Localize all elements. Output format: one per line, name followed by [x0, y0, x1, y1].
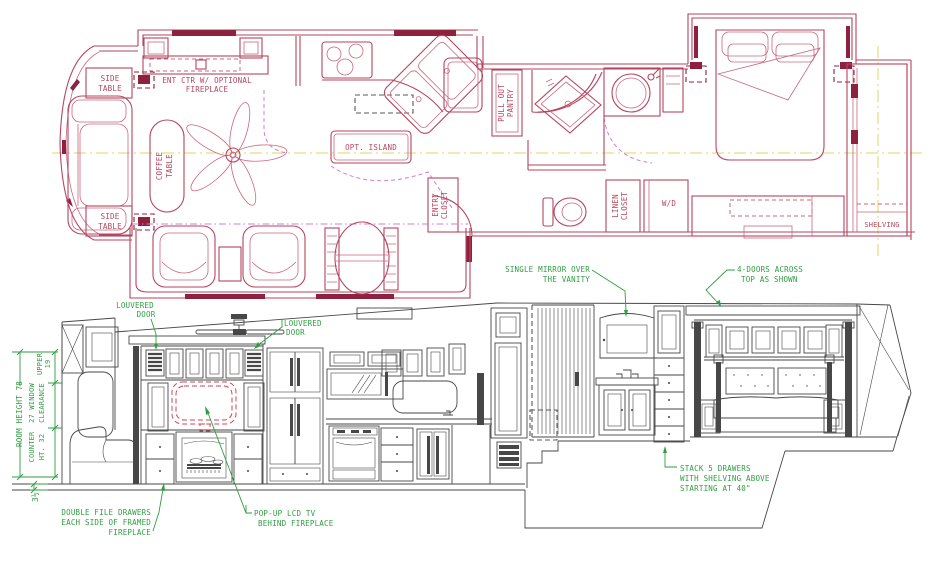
double-file-label-3: FIREPLACE [109, 528, 152, 537]
louvered-right-label-2: DOOR [286, 328, 305, 337]
vent-elevation [497, 442, 521, 468]
rear-cap-elevation [857, 304, 911, 451]
cad-drawing-page: SIDE TABLE SIDE TABLE [0, 0, 933, 569]
vanity-plan [604, 68, 660, 116]
bottom-wall-plan [455, 232, 915, 236]
pantry-label-2: PANTRY [506, 89, 515, 118]
callout-double-file-drawers: DOUBLE FILE DRAWERS EACH SIDE OF FRAMED … [61, 483, 165, 537]
wall-end-elevation [477, 373, 484, 425]
louvered-door-left-elevation [146, 350, 164, 376]
mirror-elevation [600, 314, 654, 359]
callout-four-doors: 4-DOORS ACROSS TOP AS SHOWN [706, 265, 803, 307]
stack-drawers-label-2: WITH SHELVING ABOVE [680, 474, 770, 483]
single-mirror-label-2: THE VANITY [543, 275, 590, 284]
coffee-table-label-1: COFFEE [155, 152, 164, 181]
vanity-elevation [596, 314, 658, 436]
ent-ctr-upper-doors [166, 349, 243, 378]
pocket-door-elevation [532, 305, 594, 437]
opt-island-label: OPT. ISLAND [345, 143, 397, 152]
armchair-2-plan [243, 226, 305, 287]
elevation-view [12, 303, 911, 528]
front-cap-plan [60, 46, 99, 240]
side-table-top-label-1: SIDE [101, 74, 120, 83]
bedroom-elevation [686, 306, 860, 437]
counter-edge-plan [322, 80, 443, 112]
toilet-plan [543, 198, 586, 226]
vanity-counter-elevation [596, 378, 658, 385]
popup-tv-label-2: BEHIND FIREPLACE [258, 519, 334, 528]
room-height-label: ROOM HEIGHT 78 [15, 381, 24, 447]
partition-swing-plan [264, 90, 288, 153]
linen-closet-label-2: CLOSET [620, 192, 629, 221]
bath-wall-plan [477, 36, 688, 69]
range-elevation [329, 426, 379, 481]
drawer-stack-elevation [381, 428, 413, 481]
five-drawer-stack-elevation [654, 306, 684, 442]
bath-cabinet-plan [663, 68, 683, 112]
side-table-bottom-label-2: TABLE [98, 222, 122, 231]
coffee-table-label-2: TABLE [165, 154, 174, 178]
washer-dryer-plan: W/D [644, 180, 688, 232]
double-file-label-1: DOUBLE FILE DRAWERS [61, 508, 151, 517]
linen-closet-plan: LINEN CLOSET [606, 180, 640, 232]
dimension-inner: UPPER 19 27 WINDOW CLEARANCE COUNTER HT.… [28, 349, 62, 480]
kitchen-sink-plan [381, 32, 486, 137]
hall-walls-plan [528, 116, 606, 170]
hidden-step-dashed [530, 410, 557, 440]
louvered-left-label-2: DOOR [137, 310, 156, 319]
top-slide-plan [138, 30, 478, 58]
stove-plan [322, 42, 372, 78]
counter-ht-label-1: COUNTER [28, 431, 36, 462]
dinette-plan [325, 222, 398, 294]
pantry-plan: PULL OUT PANTRY [492, 70, 522, 136]
green-annotations: LOUVERED DOOR LOUVERED DOOR SINGLE MIRRO… [12, 265, 803, 537]
shower-plan [532, 70, 602, 133]
linen-closet-label-1: LINEN [611, 194, 620, 218]
fireplace-elevation [176, 432, 232, 482]
shelving-label: SHELVING [864, 221, 899, 229]
louvered-door-right-elevation [245, 350, 263, 376]
ent-ctr-label-1: ENT CTR W/ OPTIONAL [162, 76, 252, 85]
chair-side-table-plan [219, 247, 241, 281]
four-doors-elevation [726, 327, 826, 353]
mattress-elevation [714, 397, 838, 418]
bottom-slide-plan [130, 224, 470, 299]
washer-dryer-label: W/D [662, 199, 676, 208]
wardrobe-plan: SHELVING [847, 60, 911, 240]
sofa-elevation [70, 427, 136, 484]
microwave-elevation [327, 369, 403, 399]
entry-steps-elevation [527, 441, 558, 488]
bath-cabinet-shelves [666, 76, 680, 84]
callout-single-mirror: SINGLE MIRROR OVER THE VANITY [505, 265, 628, 317]
four-doors-label-1: 4-DOORS ACROSS [737, 265, 803, 274]
four-doors-label-2: TOP AS SHOWN [741, 275, 798, 284]
stack-drawers-label-1: STACK 5 DRAWERS [680, 464, 751, 473]
ent-ctr-plan: ENT CTR W/ OPTIONAL FIREPLACE [143, 56, 268, 94]
refrigerator-elevation [267, 348, 323, 484]
floor-thickness-label: 3½ [30, 492, 40, 502]
bed-plan [716, 30, 824, 160]
window-clearance-label-2: CLEARANCE [38, 383, 46, 423]
dimension-floor-thickness: 3½ [30, 481, 48, 502]
louvered-right-label-1: LOUVERED [284, 319, 322, 328]
upper-label-1: UPPER [36, 352, 44, 375]
side-table-top-label-2: TABLE [98, 84, 122, 93]
popup-tv-label-1: POP-UP LCD TV [254, 509, 316, 518]
sink-base-cabinet-elevation [417, 429, 449, 479]
cad-drawing: SIDE TABLE SIDE TABLE [0, 0, 933, 569]
callout-louvered-door-left: LOUVERED DOOR [116, 301, 158, 350]
nightstands-plan [686, 62, 854, 82]
ceiling-fan-plan [183, 101, 287, 208]
armchair-1-plan [153, 226, 215, 287]
entry-closet-label-1: ENTRY [431, 193, 440, 217]
floor-plan-view: SIDE TABLE SIDE TABLE [52, 14, 922, 299]
vanity-faucet-elevation [616, 370, 638, 378]
ent-ctr-label-2: FIREPLACE [186, 85, 229, 94]
bed-base-elevation [716, 418, 836, 432]
side-table-bottom-label-1: SIDE [101, 212, 120, 221]
popup-tv-elevation [172, 382, 236, 431]
file-drawers-right-elevation [234, 434, 262, 484]
single-mirror-label-1: SINGLE MIRROR OVER [505, 265, 590, 274]
louvered-left-label-1: LOUVERED [116, 301, 154, 310]
window-clearance-label-1: 27 WINDOW [28, 383, 36, 423]
upper-label-2: 19 [44, 360, 52, 369]
speaker-boxes-plan [134, 72, 154, 230]
counter-ht-label-2: HT. 32 [38, 434, 46, 461]
callout-stack-drawers: STACK 5 DRAWERS WITH SHELVING ABOVE STAR… [663, 446, 770, 493]
bath-door-swing [604, 118, 652, 163]
hall-cabinet-elevation [491, 308, 527, 468]
stack-drawers-label-3: STARTING AT 40" [680, 484, 751, 493]
coffee-table-plan: COFFEE TABLE [150, 120, 184, 212]
kitchen-wall-plan [296, 36, 300, 86]
headboard-elevation [726, 368, 826, 394]
side-table-top-plan: SIDE TABLE [86, 68, 132, 98]
kitchen-uppers-elevation [327, 344, 465, 399]
file-drawers-left-elevation [146, 434, 174, 484]
ent-ctr-elevation [129, 336, 265, 484]
pantry-label-1: PULL OUT [497, 84, 506, 122]
double-file-label-2: EACH SIDE OF FRAMED [61, 518, 151, 527]
kitchen-base-elevation [326, 373, 492, 484]
entry-closet-label-2: CLOSET [440, 191, 449, 220]
